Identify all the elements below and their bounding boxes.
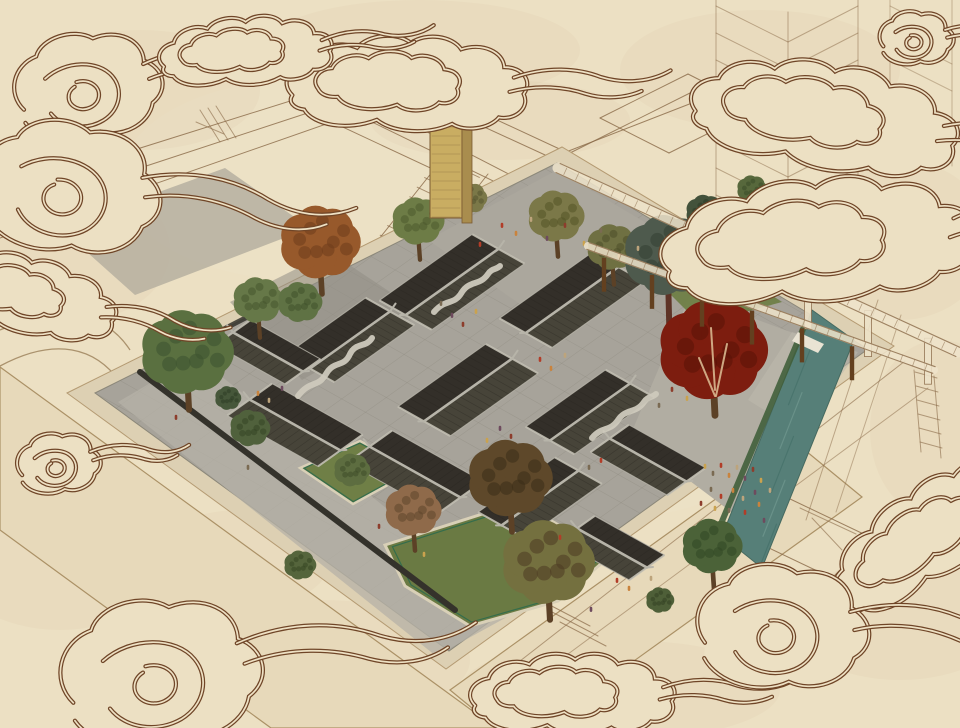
person-figure [257,391,260,396]
tree-foliage-speckle [337,224,350,237]
person-figure [499,426,502,431]
tree-foliage-speckle [401,215,409,223]
person-figure [564,353,567,358]
tree-foliage-speckle [340,243,353,256]
tree-foliage-speckle [677,338,694,355]
person-figure [744,510,747,515]
tree-foliage-speckle [248,287,256,295]
tree-foliage-speckle [225,399,229,403]
tree-foliage-speckle [242,418,248,424]
tree-foliage-speckle [189,354,204,369]
tree-foliage-speckle [705,548,715,558]
gallery-post [850,346,854,380]
tree-foliage-speckle [219,395,223,399]
tree-foliage-speckle [553,197,562,206]
person-figure [378,524,381,529]
tree-foliage-speckle [549,218,558,227]
person-figure [440,301,443,306]
tree-foliage-speckle [298,246,311,259]
tree-foliage-speckle [308,565,313,570]
tree-foliage-speckle [252,302,260,310]
tree-foliage-speckle [162,357,177,372]
person-figure [658,403,661,408]
person-figure [712,471,715,476]
person-figure [760,478,763,483]
tree-foliage-speckle [241,294,249,302]
person-figure [769,488,772,493]
tree-foliage-speckle [293,233,306,246]
tree-foliage-speckle [654,593,658,597]
person-figure [732,488,735,493]
person-figure [700,501,703,506]
tree-foliage-speckle [700,531,710,541]
tree-foliage-speckle [248,414,254,420]
person-figure [423,552,426,557]
tree-foliage-speckle [291,291,298,298]
person-figure [539,357,542,362]
tree-foliage-speckle [478,198,483,203]
tree-foliage-speckle [506,449,519,462]
tree-foliage-speckle [657,601,661,605]
person-figure [628,586,631,591]
tree-foliage-speckle [301,303,308,310]
person-figure [758,502,761,507]
tree-foliage-speckle [234,398,238,402]
tree-foliage-speckle [260,428,266,434]
tree-foliage-speckle [725,533,735,543]
ridge-upturn [460,497,466,498]
tree-foliage-speckle [750,179,755,184]
tree-foliage-speckle [410,491,419,500]
tree-foliage-speckle [746,181,751,186]
person-figure [710,487,713,492]
ridge-upturn [340,450,346,451]
tree-foliage-speckle [406,512,415,521]
tree-foliage-speckle [727,546,737,556]
person-figure [714,506,717,511]
tree-foliage-speckle [342,472,348,478]
person-figure [720,494,723,499]
tree-foliage-speckle [361,470,367,476]
tree-foliage-speckle [289,561,294,566]
ridge-upturn [647,567,653,568]
tree-foliage-speckle [431,221,439,229]
tree-foliage-speckle [288,304,295,311]
gallery-post [750,311,754,345]
tree-foliage-speckle [156,342,171,357]
person-figure [515,231,518,236]
tree-foliage-speckle [661,601,665,605]
person-figure [600,228,603,233]
gallery-post [800,328,804,362]
tree-foliage-speckle [353,471,359,477]
tree-foliage-speckle [255,283,263,291]
person-figure [550,366,553,371]
person-figure [451,313,454,318]
tree-foliage-speckle [537,566,552,581]
tree-foliage-speckle [487,482,500,495]
person-figure [728,508,731,513]
tree-foliage-speckle [350,458,356,464]
tree-foliage-speckle [652,601,656,605]
tree-foliage-speckle [310,245,323,258]
tree-foliage-speckle [402,496,411,505]
person-figure [616,578,619,583]
person-figure [475,309,478,314]
person-figure [637,246,640,251]
tree-foliage-speckle [545,202,554,211]
garden-axonometric-illustration [0,0,960,728]
tree-foliage-speckle [239,430,245,436]
tree-foliage-speckle [408,208,416,216]
tree-foliage-speckle [512,480,525,493]
tree-foliage-speckle [639,245,653,259]
person-figure [736,465,739,470]
tree-foliage-speckle [414,511,423,520]
tree-foliage-speckle [568,542,583,557]
tree-foliage-speckle [602,234,610,242]
tree-foliage-speckle [692,539,702,549]
tree-foliage-speckle [307,558,312,563]
gallery-post [650,275,654,309]
tree-foliage-speckle [345,461,351,467]
person-figure [728,473,731,478]
tree-foliage-speckle [541,219,550,228]
tree-foliage-speckle [322,244,335,257]
tree-foliage-speckle [571,563,586,578]
person-figure [742,496,745,501]
tree-foliage-speckle [493,457,506,470]
tree-foliage-speckle [251,429,257,435]
person-figure [650,576,653,581]
person-figure [479,242,482,247]
tree-foliage-speckle [659,590,663,594]
tree-foliage-speckle [528,459,541,472]
tree-foliage-speckle [570,216,579,225]
tree-foliage-speckle [651,597,655,601]
person-figure [763,518,766,523]
scene-canvas [0,0,960,728]
tree-foliage-speckle [696,549,706,559]
tree-foliage-speckle [294,557,299,562]
person-figure [559,535,562,540]
tree-foliage-speckle [360,462,366,468]
tree-foliage-speckle [176,356,191,371]
tree-foliage-speckle [229,398,233,402]
tree-foliage-speckle [227,389,231,393]
tree-foliage-speckle [531,479,544,492]
person-figure [600,458,603,463]
tree-foliage-speckle [398,513,407,522]
tree-foliage-speckle [477,190,482,195]
person-figure [510,434,513,439]
person-figure [754,490,757,495]
person-figure [530,217,533,222]
person-figure [704,464,707,469]
tree-foliage-speckle [259,419,265,425]
tree-foliage-speckle [207,332,222,347]
person-figure [486,438,489,443]
person-figure [564,223,567,228]
person-figure [175,415,178,420]
person-figure [671,387,674,392]
person-figure [744,476,747,481]
tree-foliage-speckle [245,430,251,436]
tree-foliage-speckle [309,292,316,299]
tree-foliage-speckle [412,223,420,231]
person-figure [590,607,593,612]
tree-foliage-speckle [609,230,617,238]
tree-foliage-speckle [742,186,747,191]
tree-foliage-speckle [667,600,671,604]
tree-foliage-speckle [425,498,434,507]
tree-foliage-speckle [296,566,301,571]
tree-foliage-speckle [285,297,292,304]
tree-foliage-speckle [517,552,532,567]
person-figure [247,465,250,470]
tree-foliage-speckle [427,510,436,519]
tree-foliage-speckle [244,303,252,311]
tree-foliage-speckle [404,224,412,232]
ridge-upturn [686,481,692,482]
tree-foliage-speckle [550,564,565,579]
person-figure [686,396,689,401]
tree-foliage-speckle [221,399,225,403]
tree-foliage-speckle [269,289,277,297]
tree-foliage-speckle [270,300,278,308]
tree-foliage-speckle [237,423,243,429]
person-figure [462,322,465,327]
tree-foliage-speckle [394,504,403,513]
tree-foliage-speckle [291,567,296,572]
tree-foliage-speckle [500,481,513,494]
tree-foliage-speckle [419,222,427,230]
tree-foliage-speckle [311,302,318,309]
tree-foliage-speckle [523,567,538,582]
tree-foliage-speckle [295,304,302,311]
tree-foliage-speckle [301,566,306,571]
person-figure [752,467,755,472]
person-figure [281,386,284,391]
person-figure [720,463,723,468]
person-figure [268,398,271,403]
person-figure [546,236,549,241]
tree-foliage-speckle [709,526,719,536]
tree-foliage-speckle [482,469,495,482]
tree-foliage-speckle [713,547,723,557]
tree-foliage-speckle [543,531,558,546]
tree-foliage-speckle [348,471,354,477]
tree-foliage-speckle [340,466,346,472]
tree-foliage-speckle [298,554,303,559]
tree-foliage-speckle [223,391,227,395]
person-figure [501,223,504,228]
tree-foliage-speckle [740,351,757,368]
tree-foliage-speckle [298,287,305,294]
tree-foliage-speckle [666,594,670,598]
tree-foliage-speckle [537,210,546,219]
tree-foliage-speckle [568,204,577,213]
tree-foliage-speckle [744,191,749,196]
tree-foliage-speckle [259,301,267,309]
gallery-post [602,258,606,292]
person-figure [588,465,591,470]
tree-foliage-speckle [530,539,545,554]
tree-foliage-speckle [210,353,225,368]
ridge-upturn [303,371,309,372]
tree-foliage-speckle [234,392,238,396]
tree-foliage-speckle [415,203,423,211]
